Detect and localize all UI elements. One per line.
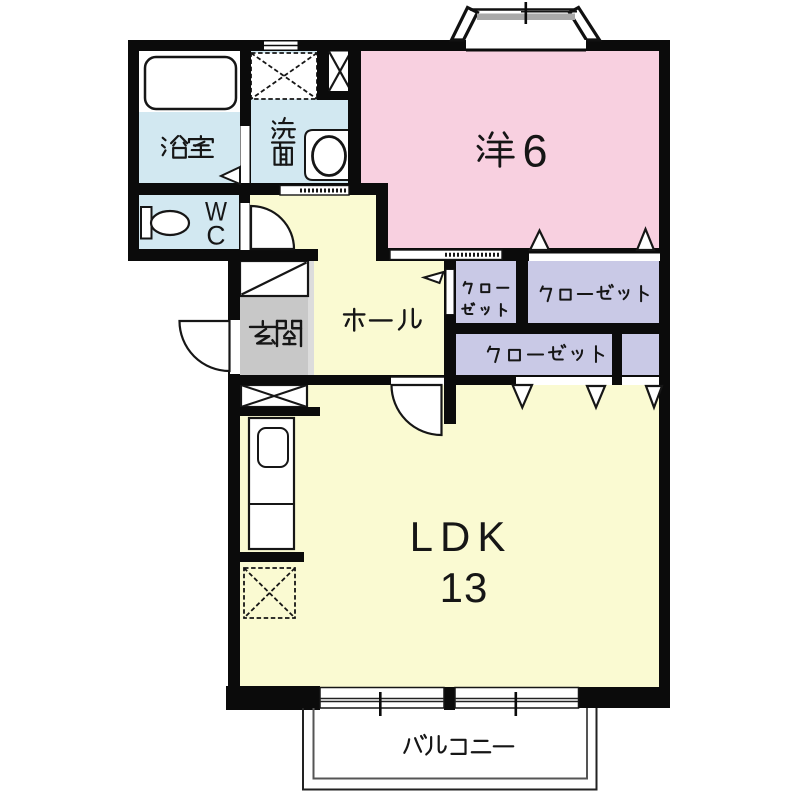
svg-text:13: 13 [440,564,489,611]
svg-text:C: C [206,221,225,251]
svg-text:6: 6 [522,126,547,177]
svg-text:LDK: LDK [410,513,513,560]
